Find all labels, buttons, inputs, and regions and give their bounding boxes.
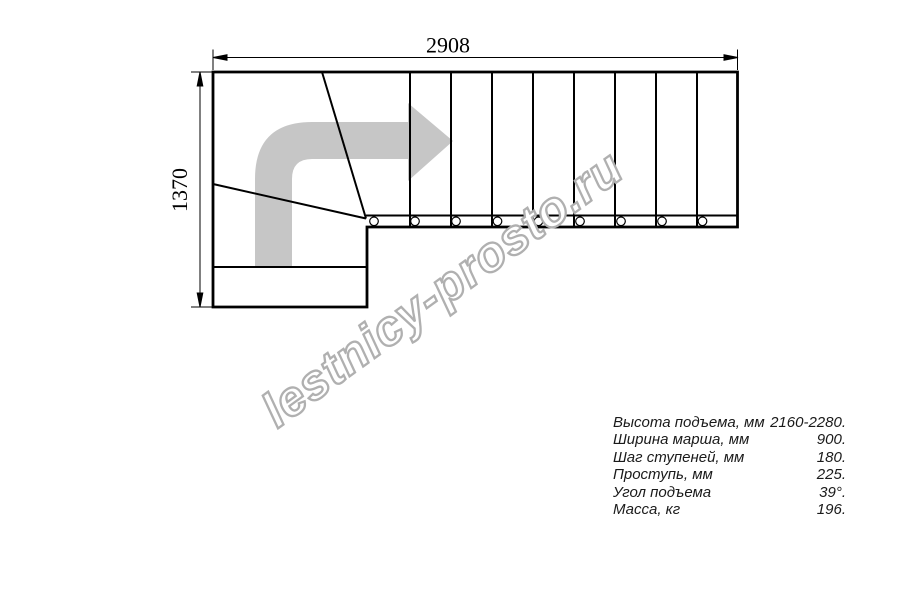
spec-label: Проступь, мм [613, 466, 713, 483]
stair-drawing-page: 2908 1370 lestnicy-prosto.ru Высота подъ… [0, 0, 900, 600]
spec-row-flight-width: Ширина марша, мм 900. [613, 431, 846, 448]
dimension-label-width: 2908 [426, 33, 470, 58]
baluster-circle [370, 217, 379, 226]
spec-row-angle: Угол подъема 39°. [613, 484, 846, 501]
spec-label: Ширина марша, мм [613, 431, 749, 448]
spec-label: Угол подъема [613, 484, 711, 501]
dimension-arrow-right [724, 55, 738, 61]
spec-value: 196. [817, 501, 846, 518]
spec-value: 900. [817, 431, 846, 448]
spec-row-height: Высота подъема, мм 2160-2280. [613, 414, 846, 431]
spec-row-mass: Масса, кг 196. [613, 501, 846, 518]
baluster-circle [411, 217, 420, 226]
specs-table: Высота подъема, мм 2160-2280. Ширина мар… [613, 414, 846, 518]
dimension-arrow-left [213, 55, 227, 61]
watermark-text: lestnicy-prosto.ru [252, 140, 633, 438]
spec-row-tread: Проступь, мм 225. [613, 466, 846, 483]
dimension-label-depth: 1370 [167, 168, 192, 212]
spec-row-step-rise: Шаг ступеней, мм 180. [613, 449, 846, 466]
spec-value: 2160-2280. [770, 414, 846, 431]
spec-label: Шаг ступеней, мм [613, 449, 744, 466]
spec-label: Высота подъема, мм [613, 414, 765, 431]
baluster-circle [617, 217, 626, 226]
spec-value: 39°. [819, 484, 846, 501]
dimension-arrow-down [197, 293, 203, 307]
top-dimension [213, 50, 738, 71]
baluster-circle [658, 217, 667, 226]
spec-value: 225. [817, 466, 846, 483]
direction-arrow-icon [255, 103, 453, 266]
spec-label: Масса, кг [613, 501, 680, 518]
baluster-circle [452, 217, 461, 226]
left-dimension [191, 72, 212, 307]
baluster-circle [698, 217, 707, 226]
spec-value: 180. [817, 449, 846, 466]
dimension-arrow-up [197, 72, 203, 86]
